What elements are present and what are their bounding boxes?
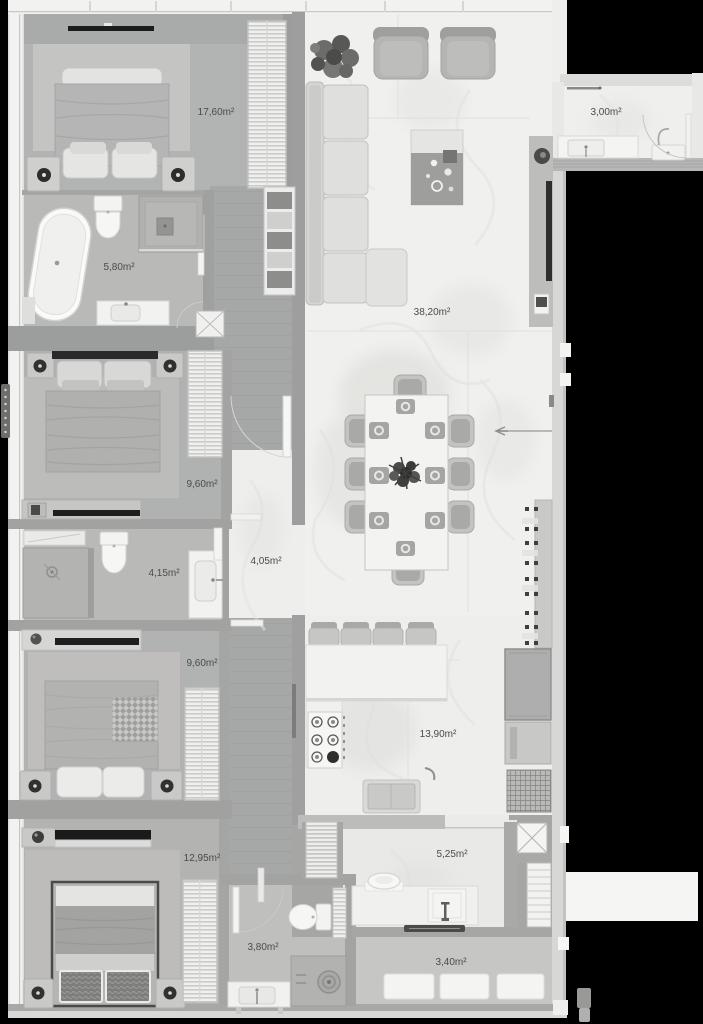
svg-text:9,60m²: 9,60m² xyxy=(186,658,218,669)
svg-text:9,60m²: 9,60m² xyxy=(186,479,218,490)
svg-text:3,80m²: 3,80m² xyxy=(247,942,279,953)
svg-text:5,25m²: 5,25m² xyxy=(436,849,468,860)
svg-text:4,15m²: 4,15m² xyxy=(148,568,180,579)
svg-text:12,95m²: 12,95m² xyxy=(184,853,221,864)
svg-text:4,05m²: 4,05m² xyxy=(250,556,282,567)
svg-text:17,60m²: 17,60m² xyxy=(198,107,235,118)
svg-text:13,90m²: 13,90m² xyxy=(420,729,457,740)
svg-text:3,40m²: 3,40m² xyxy=(435,957,467,968)
svg-text:38,20m²: 38,20m² xyxy=(414,307,451,318)
svg-text:5,80m²: 5,80m² xyxy=(103,262,135,273)
svg-text:3,00m²: 3,00m² xyxy=(590,107,622,118)
